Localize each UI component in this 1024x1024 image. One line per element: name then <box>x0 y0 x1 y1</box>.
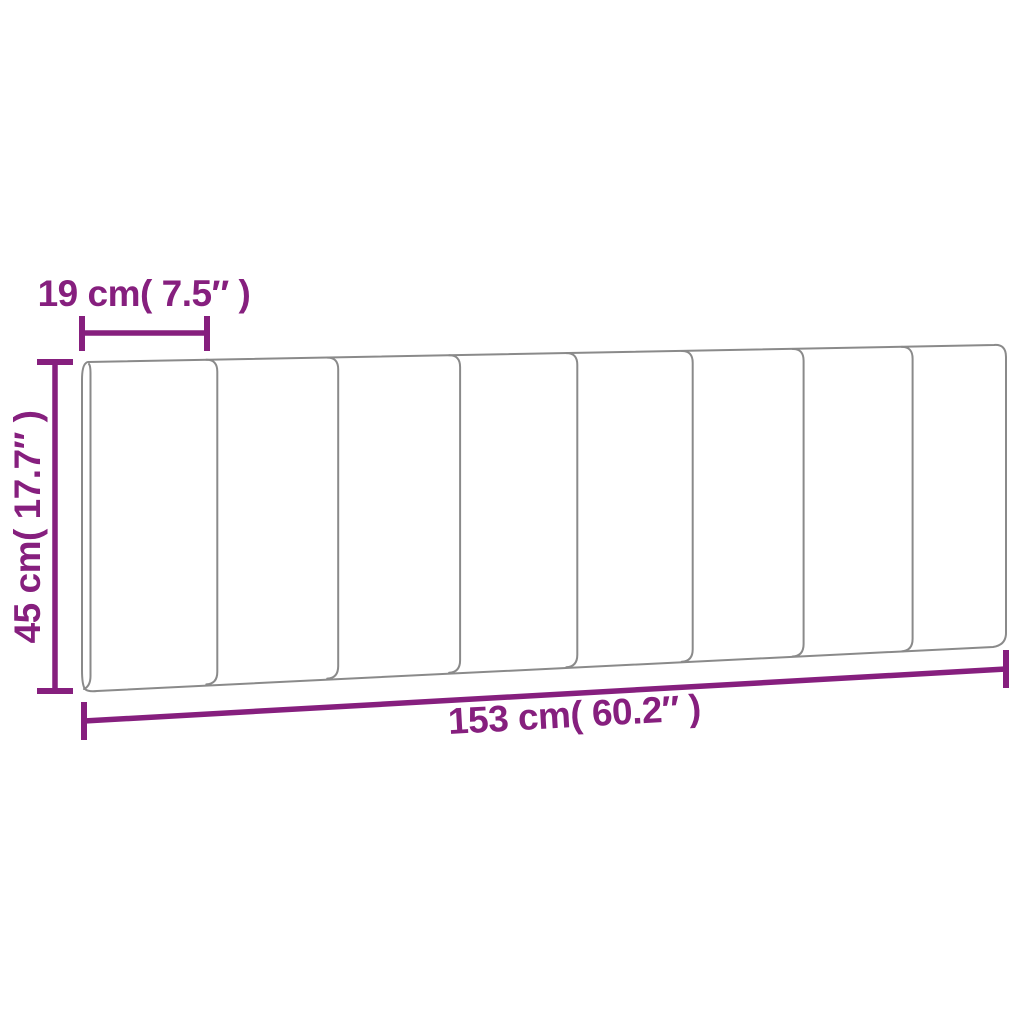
height-dimension: 45 cm( 17.7″ ) <box>7 362 73 691</box>
total-width-label: 153 cm( 60.2″ ) <box>447 687 702 742</box>
headboard-dimension-diagram: 19 cm( 7.5″ ) 45 cm( 17.7″ ) 153 cm( 60.… <box>0 0 1024 1024</box>
segment-width-dimension: 19 cm( 7.5″ ) <box>38 273 251 351</box>
segment-width-label: 19 cm( 7.5″ ) <box>38 273 251 314</box>
headboard-outline <box>82 345 1006 691</box>
headboard-shell <box>82 345 1006 691</box>
height-label: 45 cm( 17.7″ ) <box>7 411 48 644</box>
diagram-canvas: 19 cm( 7.5″ ) 45 cm( 17.7″ ) 153 cm( 60.… <box>0 0 1024 1024</box>
